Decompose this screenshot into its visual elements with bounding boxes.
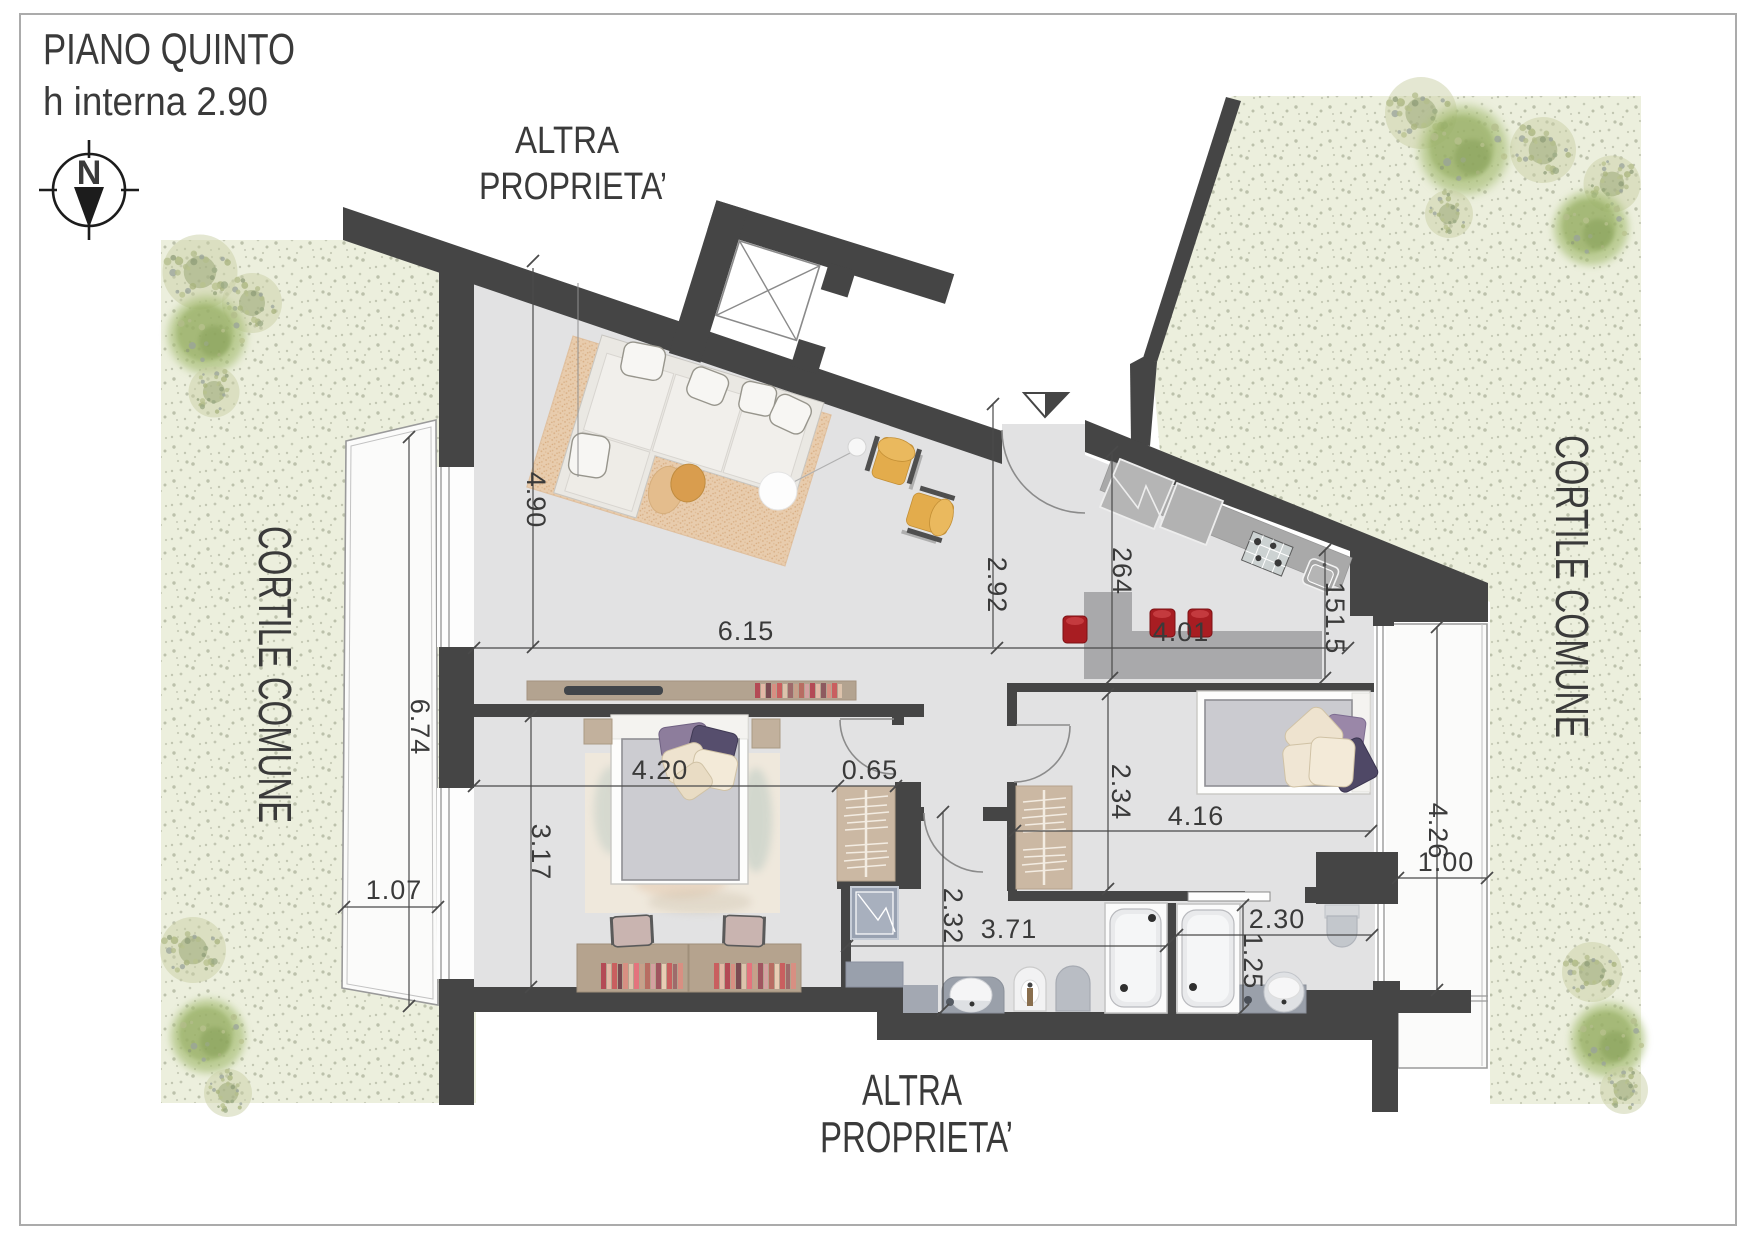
svg-text:CORTILE COMUNE: CORTILE COMUNE [249,526,301,823]
svg-text:h interna 2.90: h interna 2.90 [43,80,268,124]
svg-text:PROPRIETA’: PROPRIETA’ [820,1113,1013,1162]
svg-text:4.16: 4.16 [1168,801,1225,831]
svg-text:PIANO QUINTO: PIANO QUINTO [43,25,295,74]
svg-text:1.00: 1.00 [1418,847,1475,877]
svg-text:4.01: 4.01 [1153,617,1210,647]
svg-text:0.65: 0.65 [842,755,899,785]
svg-text:151.5: 151.5 [1320,582,1350,655]
svg-text:ALTRA: ALTRA [515,120,620,162]
svg-text:3.71: 3.71 [981,914,1038,944]
svg-text:1.25: 1.25 [1238,933,1268,990]
svg-text:2.34: 2.34 [1106,764,1136,821]
svg-text:4.90: 4.90 [521,472,551,529]
svg-text:264: 264 [1107,547,1137,595]
svg-text:2.92: 2.92 [982,557,1012,614]
svg-text:ALTRA: ALTRA [862,1066,962,1115]
svg-text:2.30: 2.30 [1249,904,1306,934]
svg-text:6.74: 6.74 [405,699,435,756]
svg-text:CORTILE COMUNE: CORTILE COMUNE [1546,435,1598,738]
svg-text:2.32: 2.32 [938,888,968,945]
svg-text:1.07: 1.07 [366,875,423,905]
svg-text:N: N [77,154,102,192]
svg-text:6.15: 6.15 [718,616,775,646]
svg-text:3.17: 3.17 [526,824,556,881]
svg-text:4.20: 4.20 [632,755,689,785]
svg-text:PROPRIETA’: PROPRIETA’ [479,166,667,208]
